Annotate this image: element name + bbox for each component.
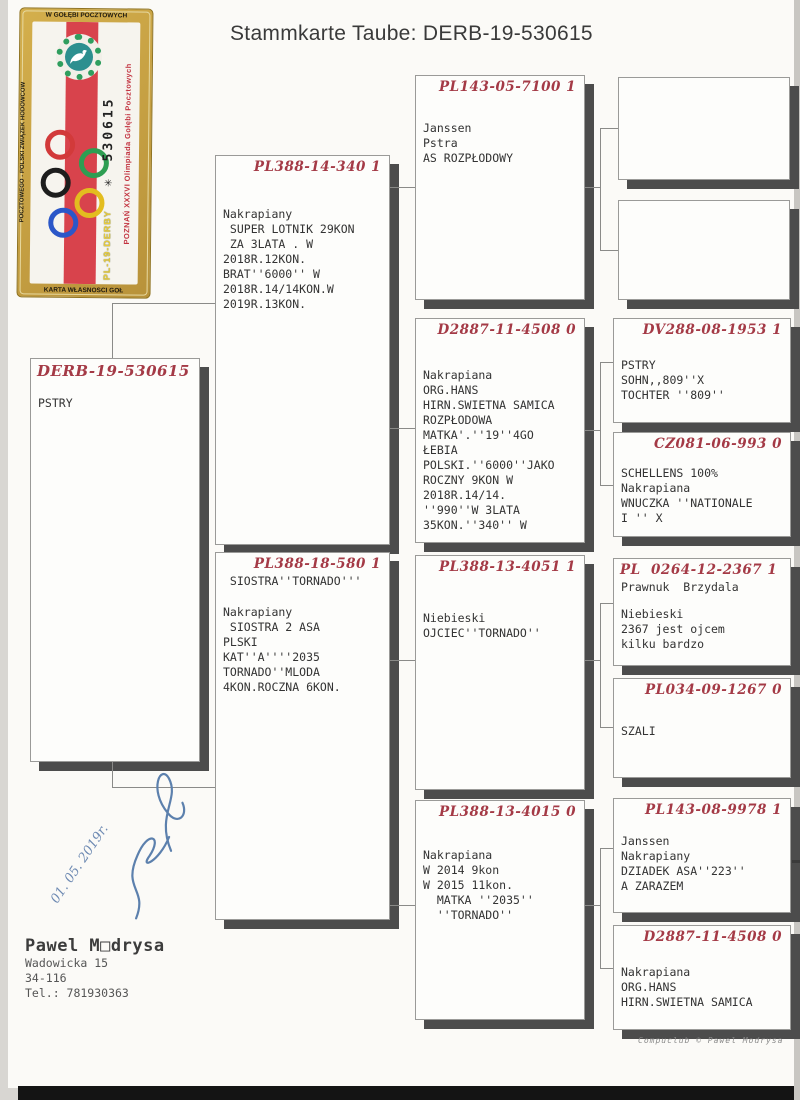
pedigree-box-d2887-11-4508-b: D2887-11-4508 0 Nakrapiana ORG.HANS HIRN… xyxy=(613,925,791,1030)
connector-line xyxy=(585,187,600,188)
ring-number: PL388-14-340 1 xyxy=(216,156,389,175)
pigeon-notes: Nakrapiany SUPER LOTNIK 29KON ZA 3LATA .… xyxy=(216,207,389,312)
connector-line xyxy=(600,362,601,485)
pedigree-box-derb-19-530615: DERB-19-530615 PSTRY xyxy=(30,358,200,762)
owner-postcode: 34-116 xyxy=(25,971,165,986)
olympic-ring-red-icon xyxy=(45,130,75,160)
pigeon-notes: Nakrapiany SIOSTRA 2 ASA PLSKI KAT''A'''… xyxy=(216,605,389,695)
ring-number: DV288-08-1953 1 xyxy=(614,319,790,338)
ring-number: CZ081-06-993 0 xyxy=(614,433,790,452)
olympic-ring-black-icon xyxy=(41,168,71,198)
pedigree-box-d2887-11-4508: D2887-11-4508 0 Nakrapiana ORG.HANS HIRN… xyxy=(415,318,585,543)
ring-number: PL388-13-4051 1 xyxy=(416,556,584,575)
pedigree-box-empty-1 xyxy=(618,77,790,180)
connector-line xyxy=(600,250,618,251)
signature-scribble xyxy=(88,762,208,928)
page-title: Stammkarte Taube: DERB-19-530615 xyxy=(230,22,593,46)
ring-number: D2887-11-4508 0 xyxy=(614,926,790,945)
software-credit: Compuclub © Pawel Modrysa xyxy=(638,1036,783,1045)
pigeon-emblem xyxy=(65,43,93,71)
owner-phone: Tel.: 781930363 xyxy=(25,986,165,1001)
connector-line xyxy=(792,860,800,863)
connector-line xyxy=(600,727,613,728)
connector-line xyxy=(600,968,613,969)
connector-line xyxy=(390,187,415,188)
connector-line xyxy=(112,303,215,304)
connector-line xyxy=(390,905,415,906)
pedigree-box-pl034-09-1267: PL034-09-1267 0 SZALI xyxy=(613,678,791,778)
pigeon-notes: Nakrapiana ORG.HANS HIRN.SWIETNA SAMICA … xyxy=(416,368,584,533)
pigeon-notes: PSTRY xyxy=(31,396,199,411)
pedigree-box-pl388-14-340: PL388-14-340 1 Nakrapiany SUPER LOTNIK 2… xyxy=(215,155,390,545)
stamp-derby-text: PL-19-DERBY xyxy=(102,172,115,280)
connector-line xyxy=(585,430,600,431)
connector-line xyxy=(585,905,600,906)
stamp-panel: ✳ 530615 PL-19-DERBY POZNAŃ XXXVI Olimpi… xyxy=(30,21,141,284)
pigeon-notes: PSTRY SOHN,,809''X TOCHTER ''809'' xyxy=(614,358,790,403)
olympiad-stamp: W GOŁĘBI POCZTOWYCH POCZTOWEGO - POLSKI … xyxy=(16,7,153,298)
pedigree-box-pl388-18-580: PL388-18-580 1 SIOSTRA''TORNADO''' Nakra… xyxy=(215,552,390,920)
laurel-wreath-icon xyxy=(56,34,102,80)
pigeon-notes: SCHELLENS 100% Nakrapiana WNUCZKA ''NATI… xyxy=(614,466,790,526)
ring-number: PL388-18-580 1 xyxy=(216,553,389,572)
pigeon-notes: Niebieski OJCIEC''TORNADO'' xyxy=(416,611,584,641)
pigeon-notes: Nakrapiana W 2014 9kon W 2015 11kon. MAT… xyxy=(416,848,584,923)
stamp-serial-number: ✳ 530615 xyxy=(101,30,119,190)
dove-icon xyxy=(68,48,90,66)
connector-line xyxy=(600,848,613,849)
pedigree-box-empty-2 xyxy=(618,200,790,300)
pigeon-notes: Nakrapiana ORG.HANS HIRN.SWIETNA SAMICA xyxy=(614,965,790,1010)
pigeon-notes: Janssen Nakrapiany DZIADEK ASA''223'' A … xyxy=(614,834,790,894)
scan-edge xyxy=(794,0,800,1100)
ring-number: PL143-08-9978 1 xyxy=(614,799,790,818)
connector-line xyxy=(600,485,613,486)
owner-name: Pawel M□drysa xyxy=(25,936,165,956)
pedigree-box-pl388-13-4015: PL388-13-4015 0 Nakrapiana W 2014 9kon W… xyxy=(415,800,585,1020)
pedigree-box-pl143-08-9978: PL143-08-9978 1 Janssen Nakrapiany DZIAD… xyxy=(613,798,791,913)
scan-artifact-bar xyxy=(18,1086,794,1100)
stamp-border-text-bottom: KARTA WŁASNOŚCI GOŁ xyxy=(18,286,150,294)
olympic-ring-blue-icon xyxy=(48,208,78,238)
stamp-border-text-top: W GOŁĘBI POCZTOWYCH xyxy=(20,11,152,19)
owner-address-block: Pawel M□drysa Wadowicka 15 34-116 Tel.: … xyxy=(25,936,165,1001)
connector-line xyxy=(390,428,415,429)
ring-number: PL034-09-1267 0 xyxy=(614,679,790,698)
connector-line xyxy=(600,362,613,363)
stamp-olympiad-text: POZNAŃ XXXVI Olimpiada Gołębi Pocztowych xyxy=(122,24,137,282)
connector-line xyxy=(600,128,601,250)
pigeon-notes: Niebieski 2367 jest ojcem kilku bardzo xyxy=(614,607,790,652)
ring-number: PL143-05-7100 1 xyxy=(416,76,584,95)
pedigree-box-cz081-06-993: CZ081-06-993 0 SCHELLENS 100% Nakrapiana… xyxy=(613,432,791,537)
pigeon-name: SIOSTRA''TORNADO''' xyxy=(216,572,389,589)
connector-line xyxy=(600,603,613,604)
connector-line xyxy=(585,660,600,661)
ring-number: PL 0264-12-2367 1 xyxy=(614,559,790,578)
pigeon-notes: Janssen Pstra AS ROZPŁODOWY xyxy=(416,121,584,166)
ring-number: DERB-19-530615 xyxy=(31,359,199,380)
pedigree-box-pl388-13-4051: PL388-13-4051 1 Niebieski OJCIEC''TORNAD… xyxy=(415,555,585,790)
pigeon-name: Prawnuk Brzydala xyxy=(614,578,790,595)
pedigree-box-pl143-05-7100: PL143-05-7100 1 Janssen Pstra AS ROZPŁOD… xyxy=(415,75,585,300)
connector-line xyxy=(600,603,601,727)
owner-street: Wadowicka 15 xyxy=(25,956,165,971)
connector-line xyxy=(600,848,601,968)
olympic-ring-yellow-icon xyxy=(74,188,104,218)
ring-number: PL388-13-4015 0 xyxy=(416,801,584,820)
connector-line xyxy=(112,303,113,358)
connector-line xyxy=(600,128,618,129)
pedigree-box-dv288-08-1953: DV288-08-1953 1 PSTRY SOHN,,809''X TOCHT… xyxy=(613,318,791,423)
pigeon-notes: SZALI xyxy=(614,724,790,739)
ring-number: D2887-11-4508 0 xyxy=(416,319,584,338)
connector-line xyxy=(390,660,415,661)
pedigree-box-pl-0264-12-2367: PL 0264-12-2367 1 Prawnuk Brzydala Niebi… xyxy=(613,558,791,666)
